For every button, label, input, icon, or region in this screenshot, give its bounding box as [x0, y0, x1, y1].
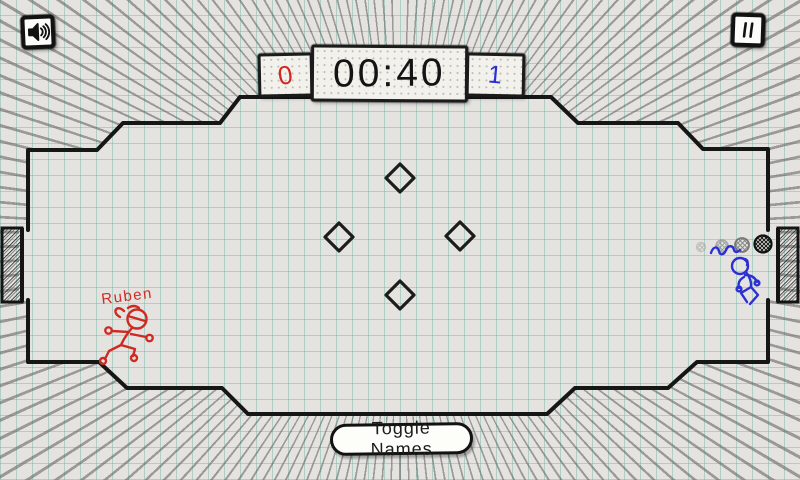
ball — [755, 236, 772, 253]
pause-icon — [736, 18, 761, 43]
right-goal — [778, 228, 798, 302]
player-red-name: Ruben — [100, 285, 153, 308]
diamond-obstacles — [325, 164, 474, 309]
diamond-obstacle — [386, 281, 414, 309]
right-score: 1 — [487, 60, 504, 90]
left-goal — [2, 228, 22, 302]
left-score-box: 0 — [258, 52, 314, 97]
match-timer: 00:40 — [333, 51, 446, 96]
game-screen: { "hud": { "sound_button": {"icon": "spe… — [0, 0, 800, 480]
diamond-obstacle — [446, 222, 474, 250]
player-red — [100, 306, 153, 364]
toggle-names-label: Toggle Names — [339, 417, 465, 461]
toggle-names-button[interactable]: Toggle Names — [330, 422, 473, 456]
left-score: 0 — [275, 58, 295, 91]
field-wall — [28, 97, 768, 414]
diamond-obstacle — [325, 223, 353, 251]
pause-button[interactable] — [730, 12, 765, 47]
sound-button[interactable] — [20, 14, 55, 49]
diamond-obstacle — [386, 164, 414, 192]
timer-box: 00:40 — [311, 44, 468, 102]
player-blue — [711, 246, 759, 304]
speaker-icon — [24, 18, 51, 45]
right-score-box: 1 — [466, 52, 526, 97]
